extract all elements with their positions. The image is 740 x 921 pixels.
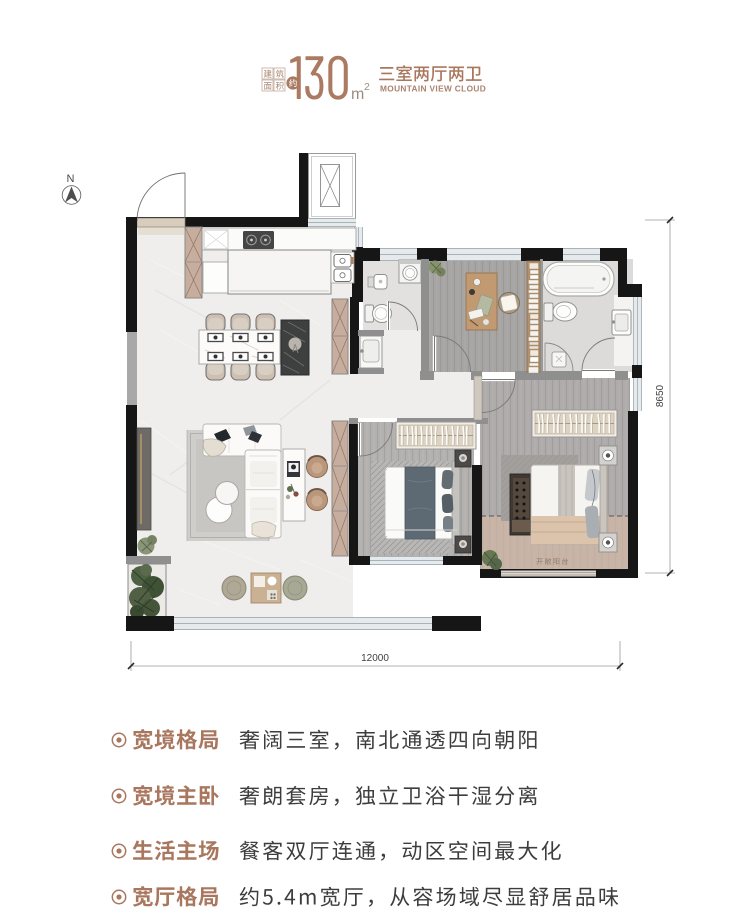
svg-text:8650: 8650 — [655, 384, 666, 407]
svg-text:N: N — [67, 173, 75, 185]
svg-text:m: m — [351, 86, 364, 103]
svg-text:MOUNTAIN VIEW CLOUD: MOUNTAIN VIEW CLOUD — [380, 84, 486, 94]
svg-text:2: 2 — [364, 81, 370, 93]
svg-text:12000: 12000 — [361, 653, 389, 664]
